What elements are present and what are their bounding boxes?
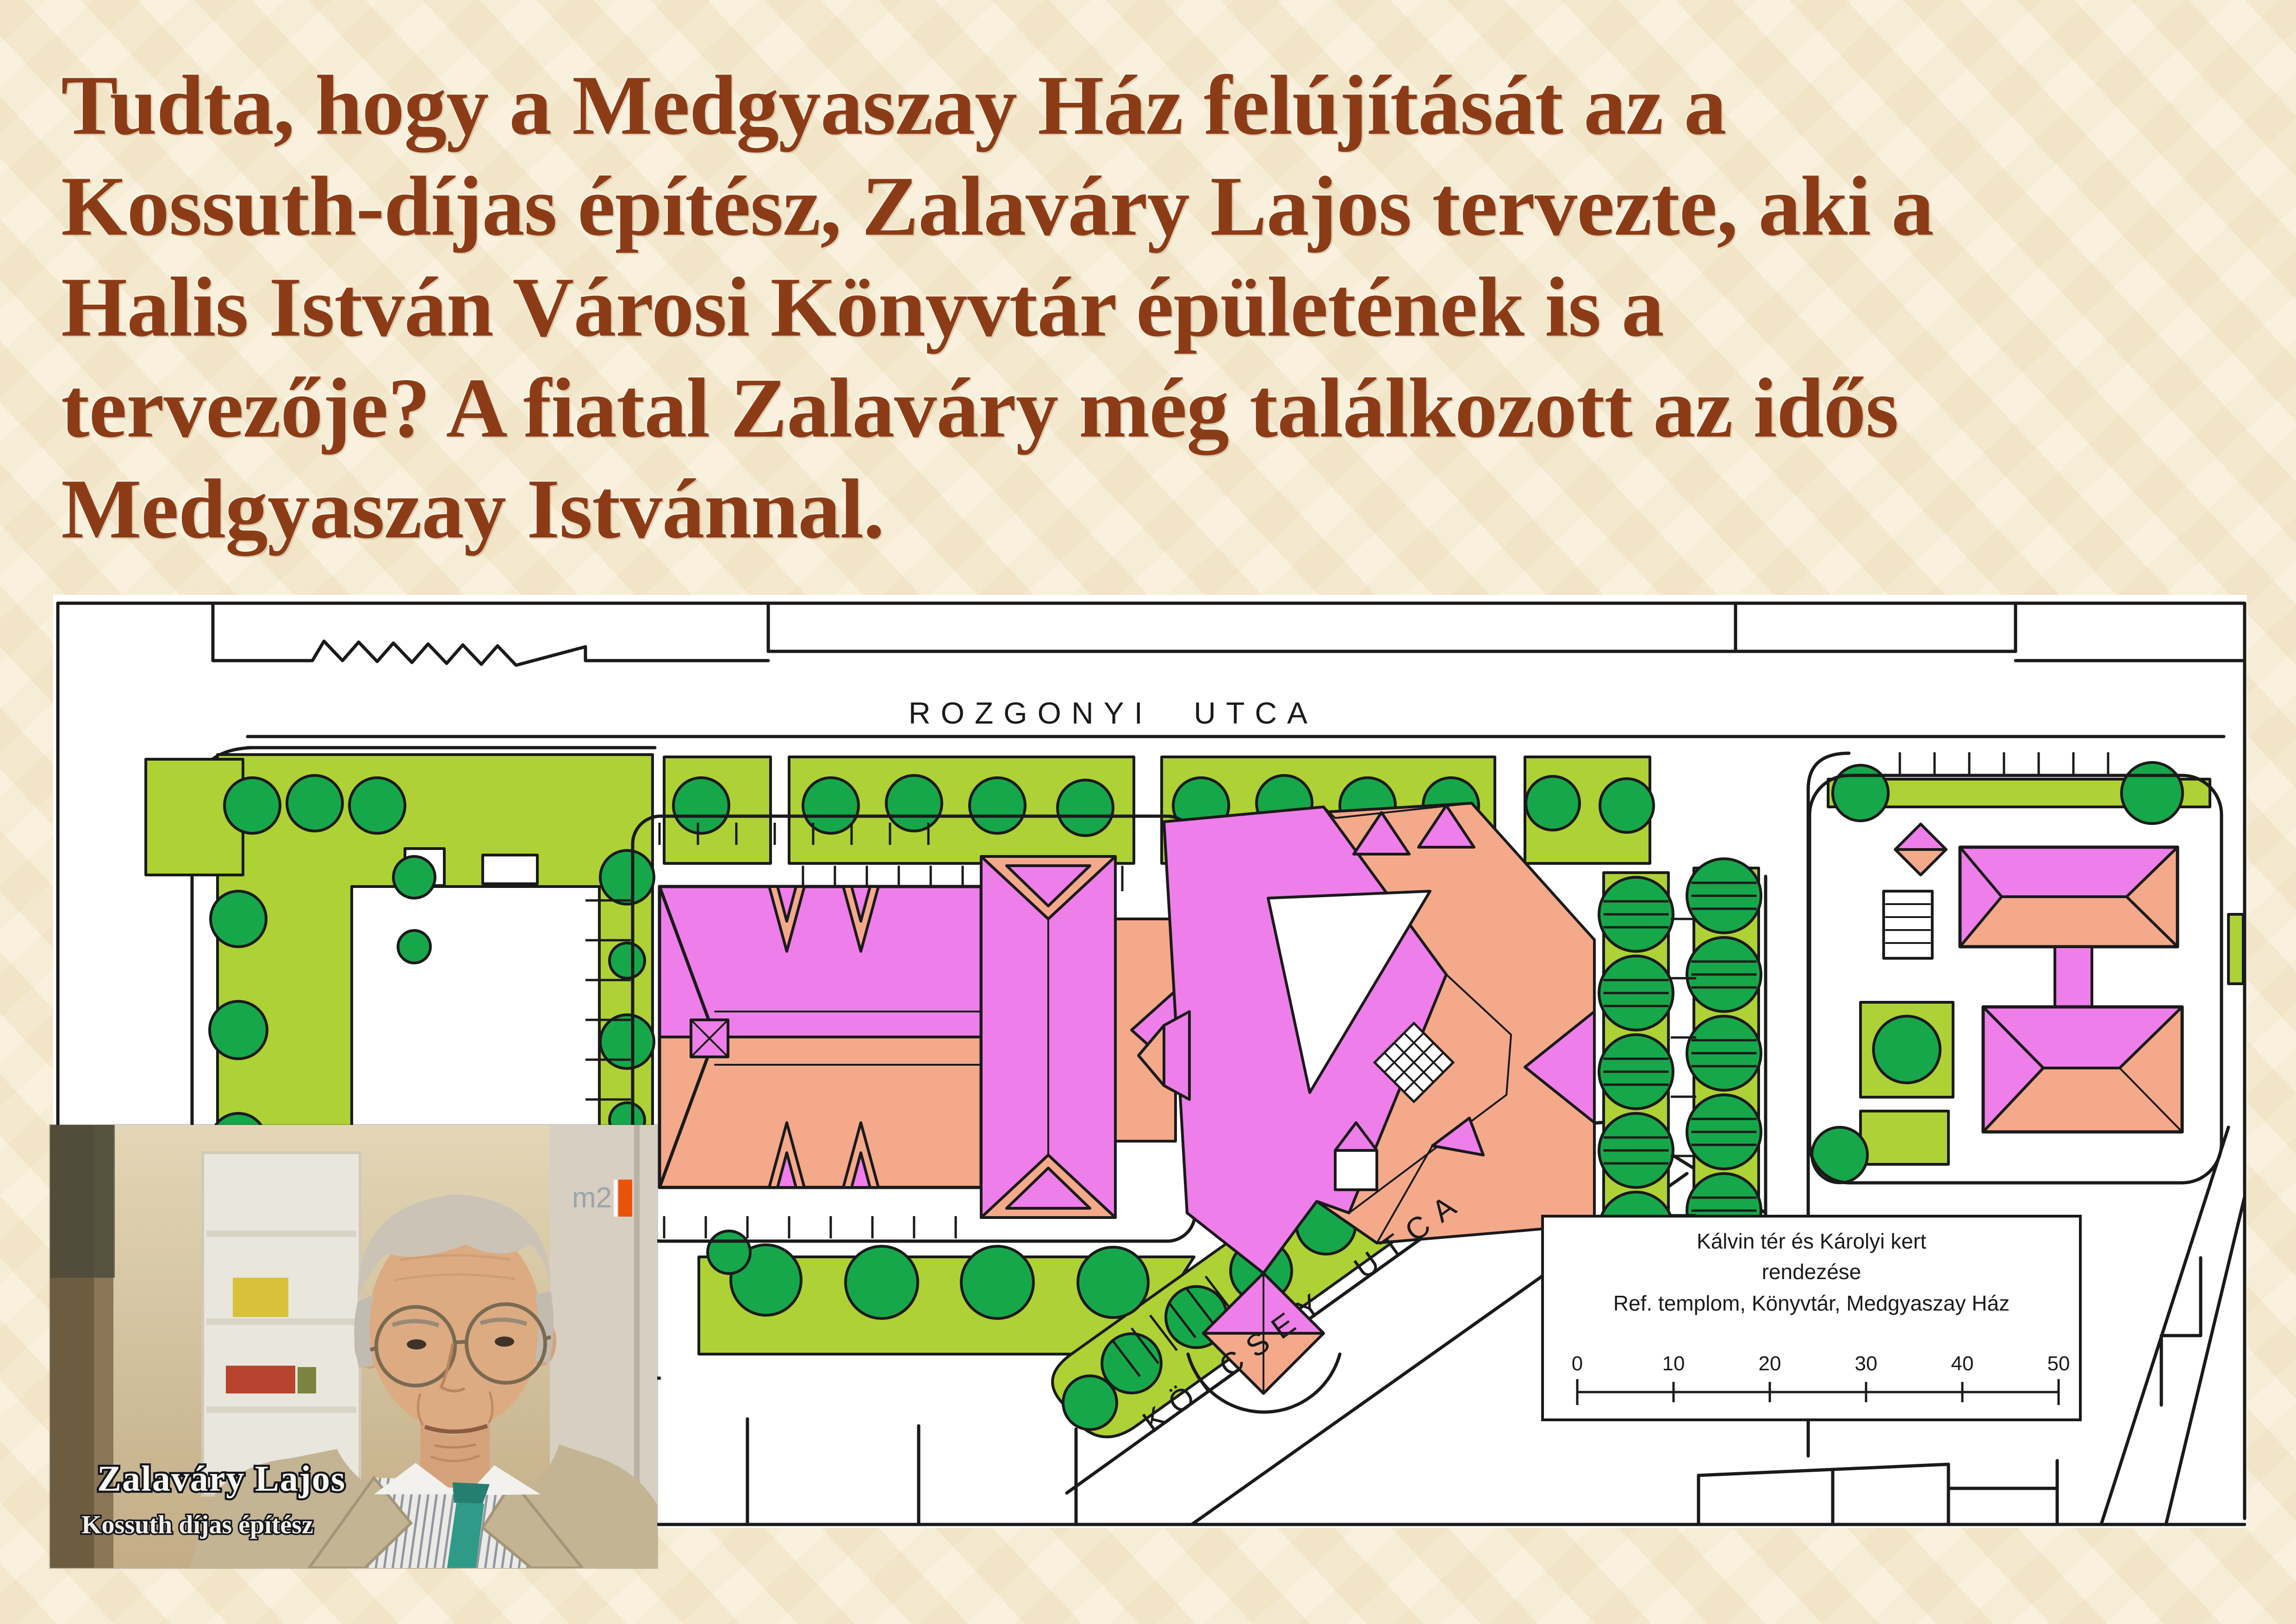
scale-tick-label: 30	[1855, 1352, 1878, 1375]
tree-icon	[393, 856, 435, 898]
tree-icon	[970, 778, 1025, 833]
tree-icon	[1102, 1334, 1161, 1393]
tree-icon	[708, 1231, 750, 1274]
title-line: Halis István Városi Könyvtár épületének …	[61, 256, 2236, 357]
tree-icon	[1600, 779, 1654, 832]
tree-icon	[211, 891, 266, 947]
title-line: Kossuth-díjas építész, Zalaváry Lajos te…	[61, 156, 2236, 256]
tree-icon	[349, 778, 405, 833]
eye	[495, 1337, 514, 1347]
tree-icon	[224, 778, 280, 833]
caption-role: Kossuth díjas építész	[81, 1511, 313, 1539]
tree-icon	[1833, 765, 1888, 821]
scale-tick-label: 50	[2047, 1352, 2070, 1375]
caption-name: Zalaváry Lajos	[97, 1458, 346, 1499]
hedge-icon	[1599, 956, 1673, 1030]
street-label-rozgonyi: ROZGONYI UTCA	[908, 696, 1318, 730]
scale-tick-label: 0	[1572, 1352, 1583, 1375]
tv-logo: m2	[572, 1180, 632, 1217]
hedge-icon	[1687, 859, 1761, 933]
legend-subtitle: Ref. templom, Könyvtár, Medgyaszay Ház	[1613, 1291, 2010, 1315]
channel-logo-text: m2	[572, 1182, 612, 1214]
tree-icon	[1526, 776, 1580, 830]
legend-title-line1: Kálvin tér és Károlyi kert	[1697, 1229, 1926, 1253]
legend-title-line2: rendezése	[1762, 1260, 1861, 1284]
tree-icon	[1078, 1247, 1148, 1318]
tree-icon	[1058, 780, 1113, 836]
bookshelf	[203, 1153, 360, 1495]
scale-tick-label: 40	[1951, 1352, 1974, 1375]
slide-title: Tudta, hogy a Medgyaszay Ház felújítását…	[61, 55, 2236, 559]
tree-icon	[846, 1246, 918, 1318]
logo-accent-bar	[618, 1180, 632, 1217]
tree-icon	[673, 778, 729, 833]
tree-icon	[803, 778, 859, 833]
hedge-icon	[1599, 1113, 1673, 1187]
scale-tick-label: 20	[1759, 1352, 1781, 1375]
title-line: Medgyaszay Istvánnal.	[61, 458, 2236, 559]
interview-photo-svg: m2 Zalaváry Lajos Kossuth díjas építész	[50, 1125, 657, 1568]
scale-tick-label: 10	[1662, 1352, 1685, 1375]
tree-icon	[398, 931, 430, 963]
interview-photo: m2 Zalaváry Lajos Kossuth díjas építész	[50, 1125, 657, 1568]
tree-icon	[2122, 762, 2183, 824]
tree-icon	[886, 775, 942, 831]
tree-icon	[1873, 1016, 1940, 1083]
tree-icon	[210, 1001, 267, 1059]
tree-icon	[287, 775, 342, 831]
tree-icon	[610, 943, 645, 978]
hedge-icon	[1687, 1016, 1761, 1090]
title-line: Tudta, hogy a Medgyaszay Ház felújítását…	[61, 55, 2236, 156]
hedge-icon	[1687, 937, 1761, 1012]
hedge-icon	[1599, 1035, 1673, 1109]
hedge-icon	[1687, 1095, 1761, 1169]
tree-icon	[1812, 1127, 1867, 1183]
eye	[407, 1339, 426, 1349]
tree-icon	[961, 1246, 1033, 1318]
legend-box: Kálvin tér és Károlyi kert rendezése Ref…	[1543, 1216, 2080, 1420]
hedge-icon	[1599, 877, 1673, 951]
tree-icon	[600, 850, 654, 904]
logo-notch	[614, 1180, 617, 1217]
slide-background: Tudta, hogy a Medgyaszay Ház felújítását…	[0, 0, 2296, 1624]
title-line: tervezője? A fiatal Zalaváry még találko…	[61, 357, 2236, 458]
